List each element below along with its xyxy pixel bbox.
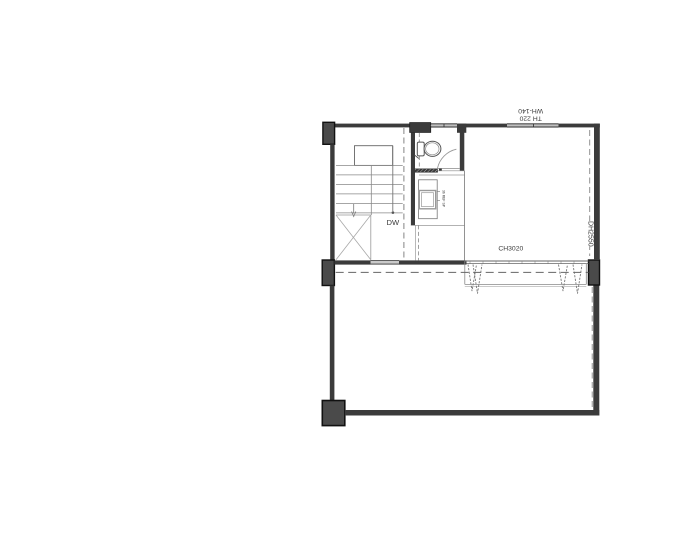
- svg-text:DW: DW: [386, 218, 399, 227]
- svg-text:CH3020: CH3020: [498, 246, 523, 253]
- svg-text:WH-140: WH-140: [518, 107, 543, 114]
- svg-text:36 REF SP: 36 REF SP: [442, 190, 446, 208]
- svg-text:DH2550: DH2550: [587, 221, 594, 247]
- svg-text:TH 220: TH 220: [519, 114, 542, 121]
